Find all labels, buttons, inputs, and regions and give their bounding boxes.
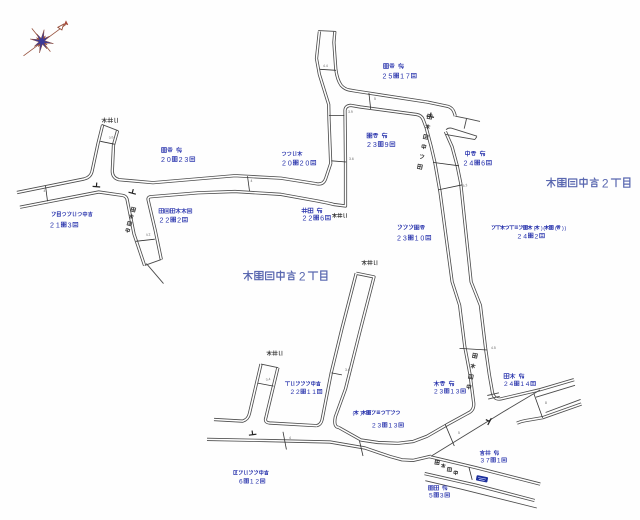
svg-text:1: 1 [497,458,501,465]
svg-text:2: 2 [299,270,306,284]
svg-text:1: 1 [250,479,254,486]
svg-text:2: 2 [602,177,609,191]
svg-text:2: 2 [518,233,522,240]
svg-text:3: 3 [373,141,377,149]
svg-text:5: 5 [458,431,460,435]
svg-text:7: 7 [406,73,410,81]
svg-text:2: 2 [464,160,468,168]
svg-text:1: 1 [400,73,404,81]
svg-text:3: 3 [394,423,398,430]
svg-text:4: 4 [289,436,291,440]
svg-text:2: 2 [308,215,312,223]
svg-text:2: 2 [372,423,376,430]
svg-text:1: 1 [450,389,454,396]
svg-text:2: 2 [504,381,508,388]
svg-text:5: 5 [374,97,376,101]
svg-text:2: 2 [179,156,183,164]
svg-text:2: 2 [535,233,539,240]
svg-text:2: 2 [296,389,300,396]
svg-text:3.6: 3.6 [108,135,113,140]
svg-text:1: 1 [56,222,60,230]
svg-text:1: 1 [520,381,524,388]
svg-text:2: 2 [177,217,181,225]
svg-text:3.9: 3.9 [348,110,353,114]
svg-text:3: 3 [184,156,188,164]
svg-text:6: 6 [239,479,243,486]
svg-text:3.6: 3.6 [349,157,354,161]
svg-text:2: 2 [50,222,54,230]
svg-text:5: 5 [388,73,392,81]
svg-text:1: 1 [312,389,316,396]
svg-text:2: 2 [397,235,401,243]
svg-text:2: 2 [161,156,165,164]
svg-text:9: 9 [385,141,389,149]
svg-text:3: 3 [403,235,407,243]
svg-text:): ) [564,226,566,232]
svg-text:4: 4 [509,381,513,388]
svg-text:4: 4 [526,381,530,388]
svg-text:4: 4 [523,233,527,240]
svg-text:2: 2 [160,217,164,225]
svg-text:4: 4 [44,189,46,193]
svg-text:4: 4 [251,179,253,183]
svg-text:3: 3 [440,493,444,500]
svg-text:0: 0 [305,160,309,168]
svg-text:3: 3 [456,389,460,396]
svg-text:2: 2 [434,389,438,396]
svg-text:2: 2 [303,215,307,223]
svg-text:2: 2 [255,479,259,486]
svg-text:7: 7 [486,458,490,465]
svg-text:4.5: 4.5 [491,346,496,350]
svg-text:0: 0 [167,156,171,164]
svg-text:6: 6 [481,160,485,168]
svg-text:4.4: 4.4 [323,64,328,68]
svg-text:4.2: 4.2 [146,232,151,237]
svg-text:2: 2 [367,141,371,149]
svg-text:2: 2 [282,160,286,168]
svg-text:5: 5 [429,493,433,500]
svg-text:1: 1 [415,235,419,243]
svg-text:0: 0 [288,160,292,168]
svg-text:8: 8 [545,401,547,405]
svg-text:3: 3 [68,222,72,230]
svg-text:1: 1 [307,389,311,396]
svg-text:3: 3 [480,458,484,465]
svg-text:2: 2 [300,160,304,168]
svg-text:0: 0 [420,235,424,243]
svg-text:6: 6 [320,215,324,223]
svg-text:3.6: 3.6 [345,368,350,372]
svg-text:2: 2 [383,73,387,81]
svg-text:3: 3 [377,423,381,430]
svg-text:2: 2 [165,217,169,225]
svg-text:4: 4 [469,160,473,168]
svg-text:3: 3 [439,389,443,396]
svg-text:2: 2 [290,389,294,396]
svg-text:1: 1 [388,423,392,430]
